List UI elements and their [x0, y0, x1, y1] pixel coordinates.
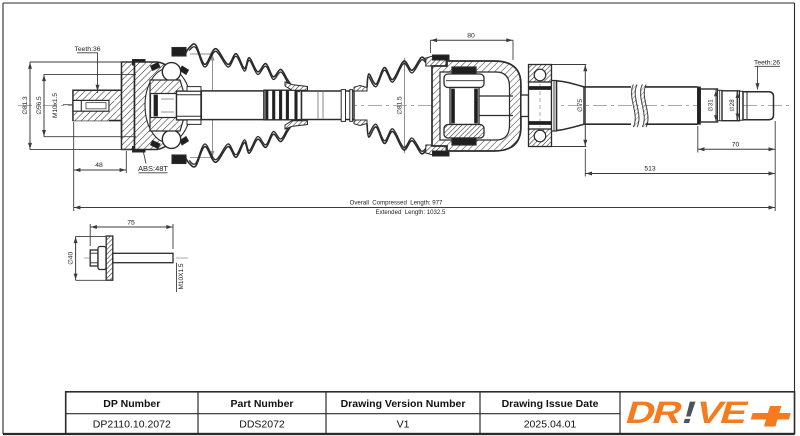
svg-text:V1: V1 [397, 419, 410, 431]
svg-text:∅75: ∅75 [577, 99, 584, 112]
svg-text:∅40: ∅40 [67, 251, 74, 264]
svg-text:Overall Compressed Length: 9: Overall Compressed Length: 977 [350, 200, 443, 207]
svg-text:M10X1.5: M10X1.5 [178, 263, 185, 289]
svg-text:Teeth:36: Teeth:36 [74, 46, 100, 53]
svg-text:M10x1.5: M10x1.5 [52, 93, 59, 118]
svg-text:Extended Length: 1032.5: Extended Length: 1032.5 [376, 209, 446, 216]
svg-text:DP Number: DP Number [103, 398, 160, 410]
svg-text:ABS:48T: ABS:48T [138, 164, 168, 173]
svg-text:Part Number: Part Number [230, 398, 293, 410]
svg-text:2025.04.01: 2025.04.01 [524, 419, 577, 431]
svg-text:Drawing Version Number: Drawing Version Number [341, 398, 466, 410]
svg-text:48: 48 [95, 162, 103, 169]
svg-text:80: 80 [467, 32, 475, 39]
svg-text:∅81.3: ∅81.3 [22, 96, 29, 115]
svg-text:Teeth:26: Teeth:26 [754, 59, 780, 66]
svg-text:70: 70 [732, 141, 740, 148]
svg-text:∅31: ∅31 [708, 99, 715, 112]
svg-text:∅28: ∅28 [729, 99, 736, 112]
svg-text:Drawing Issue Date: Drawing Issue Date [502, 398, 599, 410]
svg-text:∅56.5: ∅56.5 [36, 96, 43, 115]
svg-text:513: 513 [644, 166, 656, 173]
svg-text:DP2110.10.2072: DP2110.10.2072 [93, 419, 171, 431]
svg-text:∅81.5: ∅81.5 [396, 96, 403, 115]
svg-text:75: 75 [127, 219, 135, 226]
svg-text:DDS2072: DDS2072 [239, 419, 285, 431]
